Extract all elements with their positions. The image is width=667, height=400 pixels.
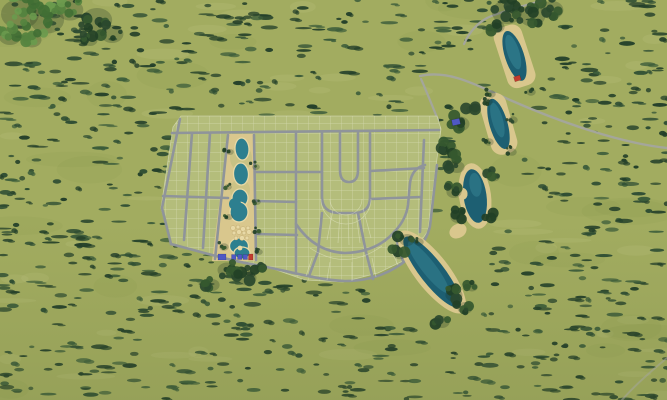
blue-roof-building <box>218 254 226 260</box>
masterplan-aerial-render <box>0 0 667 400</box>
amenity-buildings <box>218 254 253 260</box>
blue-roof-building <box>243 255 248 260</box>
lagoon-pool-2 <box>233 163 249 186</box>
blue-roof-building <box>238 255 243 260</box>
blue-roof-building <box>232 255 237 260</box>
scene-svg <box>0 0 667 400</box>
red-roof-building <box>249 254 254 260</box>
grid-street <box>256 201 296 202</box>
grid-street <box>256 234 297 235</box>
pool-island <box>238 246 243 251</box>
clubhouse-blue-roof <box>451 118 460 126</box>
